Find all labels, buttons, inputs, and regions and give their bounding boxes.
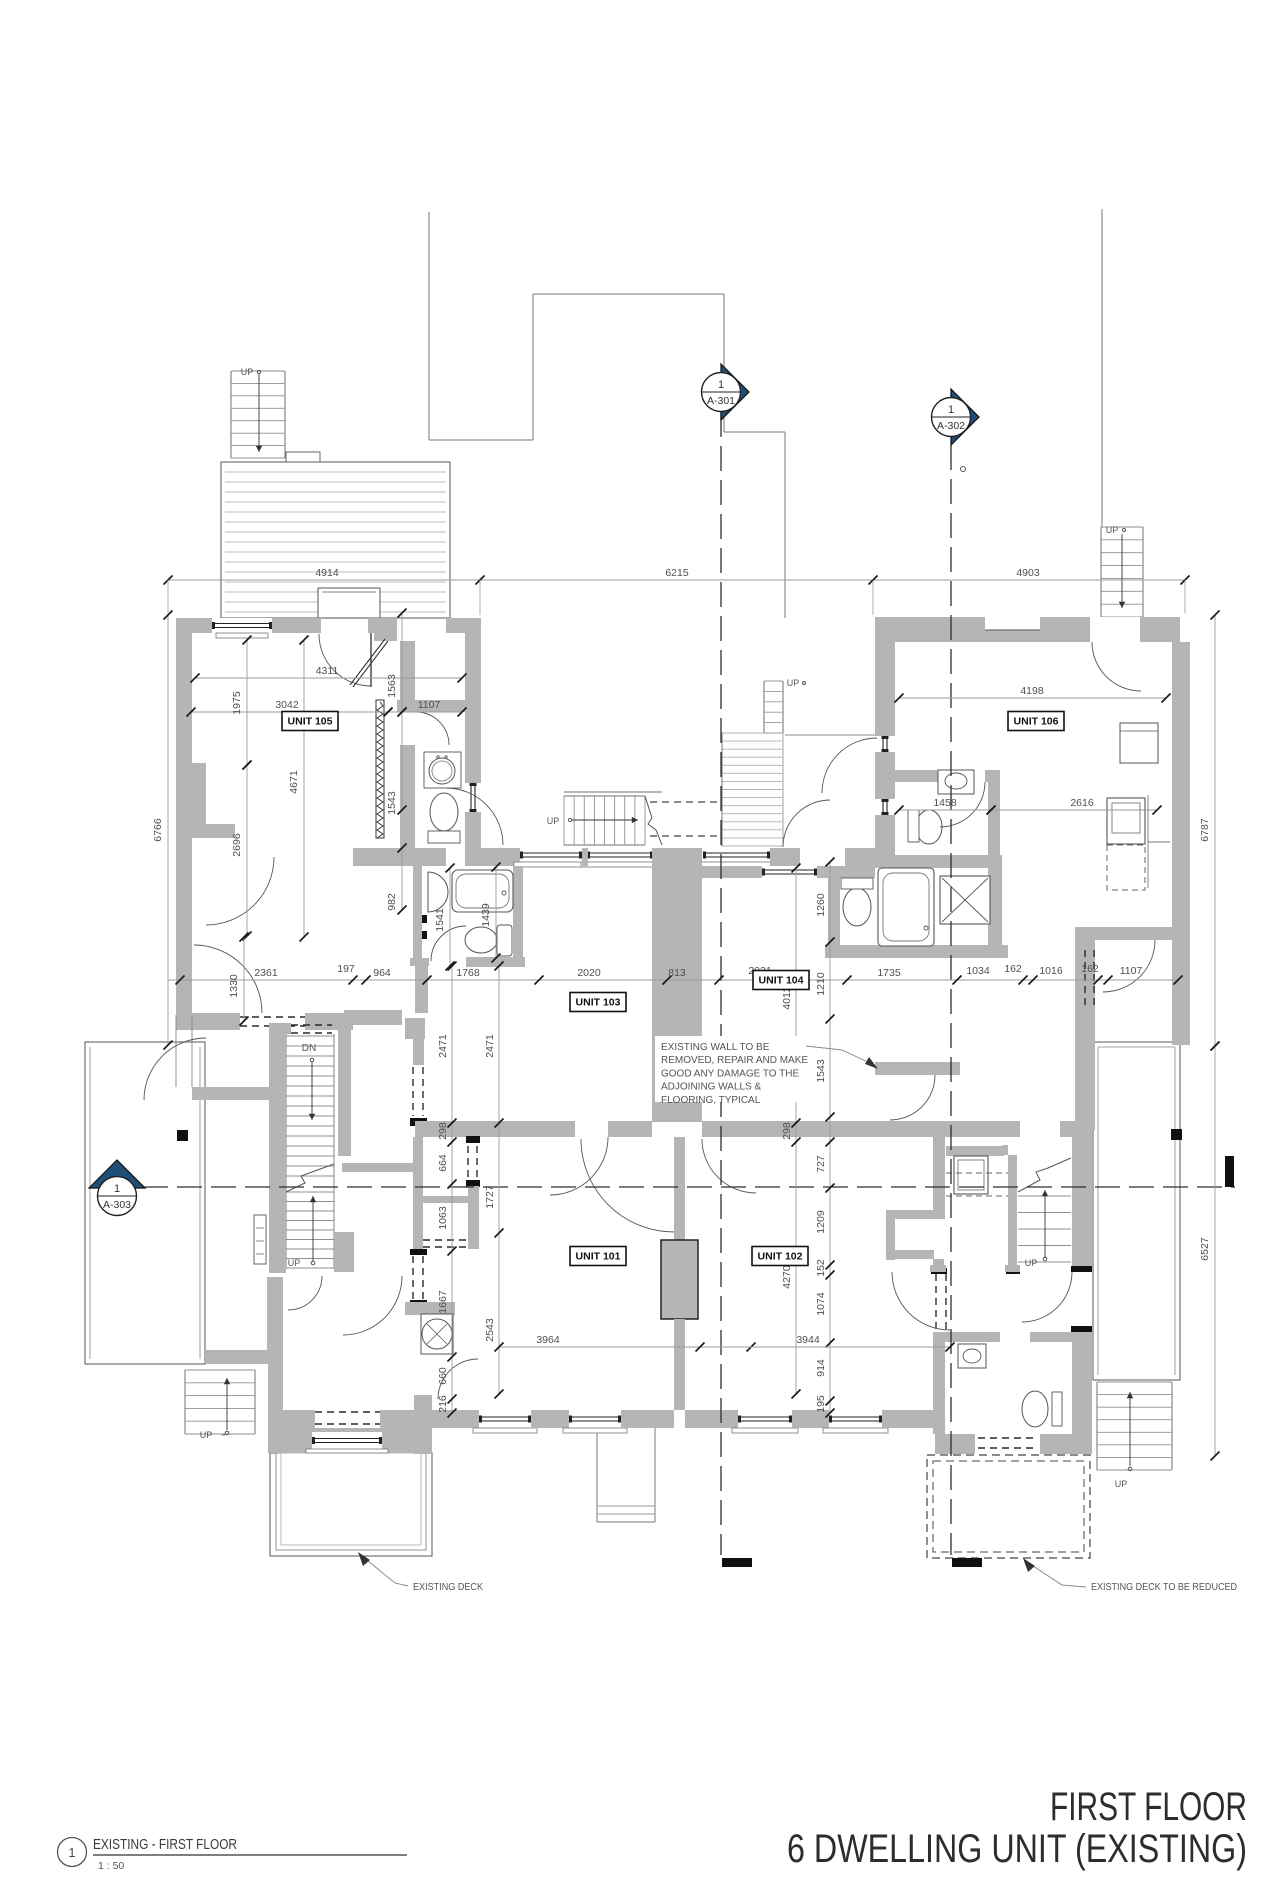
svg-text:6527: 6527 xyxy=(1199,1237,1211,1261)
svg-text:EXISTING - FIRST FLOOR: EXISTING - FIRST FLOOR xyxy=(93,1837,237,1853)
svg-text:1034: 1034 xyxy=(966,965,990,977)
svg-text:1: 1 xyxy=(114,1183,120,1195)
svg-text:6 DWELLING UNIT (EXISTING): 6 DWELLING UNIT (EXISTING) xyxy=(787,1827,1247,1871)
svg-text:3944: 3944 xyxy=(796,1334,820,1346)
svg-text:2696: 2696 xyxy=(231,833,243,857)
svg-text:6787: 6787 xyxy=(1199,818,1211,842)
svg-text:216: 216 xyxy=(437,1395,449,1413)
svg-text:1: 1 xyxy=(948,404,954,416)
svg-text:1107: 1107 xyxy=(1120,965,1143,977)
svg-text:EXISTING DECK TO BE REDUCED: EXISTING DECK TO BE REDUCED xyxy=(1091,1581,1237,1593)
svg-text:GOOD ANY DAMAGE TO THE: GOOD ANY DAMAGE TO THE xyxy=(661,1068,800,1079)
svg-text:UNIT 105: UNIT 105 xyxy=(288,716,333,728)
svg-text:1107: 1107 xyxy=(418,699,441,711)
svg-text:A-301: A-301 xyxy=(707,395,735,407)
svg-text:UP: UP xyxy=(1106,525,1119,535)
svg-text:1: 1 xyxy=(718,379,724,391)
svg-text:664: 664 xyxy=(437,1154,449,1172)
svg-text:UNIT 102: UNIT 102 xyxy=(758,1251,803,1263)
svg-text:162: 162 xyxy=(1004,963,1022,975)
svg-text:1439: 1439 xyxy=(480,903,492,927)
svg-text:A-302: A-302 xyxy=(937,420,965,432)
svg-text:UNIT 103: UNIT 103 xyxy=(576,997,621,1009)
svg-text:4270: 4270 xyxy=(781,1265,793,1289)
svg-text:UP: UP xyxy=(288,1258,301,1268)
svg-text:UP: UP xyxy=(1025,1258,1038,1268)
svg-text:152: 152 xyxy=(815,1259,827,1277)
svg-text:6215: 6215 xyxy=(665,567,689,579)
svg-text:UNIT 104: UNIT 104 xyxy=(759,975,804,987)
svg-text:1768: 1768 xyxy=(456,967,480,979)
svg-text:2471: 2471 xyxy=(484,1034,496,1058)
svg-text:298: 298 xyxy=(437,1122,449,1140)
svg-text:813: 813 xyxy=(668,967,686,979)
svg-text:FLOORING, TYPICAL: FLOORING, TYPICAL xyxy=(661,1095,761,1106)
svg-text:1543: 1543 xyxy=(815,1059,827,1083)
svg-text:UP: UP xyxy=(547,816,560,826)
svg-text:195: 195 xyxy=(815,1395,827,1413)
svg-text:A-303: A-303 xyxy=(103,1199,131,1211)
svg-text:162: 162 xyxy=(1081,963,1099,975)
svg-text:1063: 1063 xyxy=(437,1206,449,1230)
svg-text:1727: 1727 xyxy=(484,1185,496,1209)
svg-text:UP: UP xyxy=(787,678,800,688)
svg-text:2616: 2616 xyxy=(1070,797,1094,809)
svg-text:EXISTING DECK: EXISTING DECK xyxy=(413,1581,483,1593)
svg-text:4198: 4198 xyxy=(1020,685,1044,697)
svg-text:3964: 3964 xyxy=(536,1334,560,1346)
svg-text:1 : 50: 1 : 50 xyxy=(98,1860,124,1872)
svg-text:1074: 1074 xyxy=(815,1292,827,1316)
svg-text:2471: 2471 xyxy=(437,1034,449,1058)
svg-text:982: 982 xyxy=(386,893,398,911)
svg-text:1458: 1458 xyxy=(933,797,957,809)
svg-text:UP: UP xyxy=(200,1430,213,1440)
svg-text:4903: 4903 xyxy=(1016,567,1040,579)
svg-text:197: 197 xyxy=(337,963,355,975)
svg-text:1016: 1016 xyxy=(1039,965,1063,977)
svg-text:1543: 1543 xyxy=(386,791,398,815)
svg-text:1: 1 xyxy=(69,1846,76,1860)
svg-text:298: 298 xyxy=(781,1122,793,1140)
svg-text:1563: 1563 xyxy=(386,674,398,698)
svg-text:1260: 1260 xyxy=(815,893,827,917)
svg-text:2020: 2020 xyxy=(577,967,601,979)
svg-text:UP: UP xyxy=(1115,1479,1128,1489)
svg-text:1735: 1735 xyxy=(877,967,901,979)
svg-text:1209: 1209 xyxy=(815,1210,827,1234)
svg-text:1210: 1210 xyxy=(815,972,827,996)
svg-text:4914: 4914 xyxy=(315,567,339,579)
svg-text:1541: 1541 xyxy=(434,908,446,932)
svg-text:UNIT 101: UNIT 101 xyxy=(576,1251,621,1263)
svg-text:UNIT 106: UNIT 106 xyxy=(1014,716,1059,728)
svg-text:2543: 2543 xyxy=(484,1318,496,1342)
svg-text:UP: UP xyxy=(241,367,254,377)
svg-text:FIRST FLOOR: FIRST FLOOR xyxy=(1050,1785,1247,1829)
svg-text:ADJOINING WALLS &: ADJOINING WALLS & xyxy=(661,1082,762,1093)
svg-text:4671: 4671 xyxy=(288,770,300,794)
svg-text:964: 964 xyxy=(373,967,391,979)
svg-text:EXISTING WALL TO BE: EXISTING WALL TO BE xyxy=(661,1042,770,1053)
svg-text:DN: DN xyxy=(302,1043,316,1054)
svg-text:1667: 1667 xyxy=(437,1290,449,1314)
svg-text:660: 660 xyxy=(437,1367,449,1385)
svg-text:727: 727 xyxy=(815,1155,827,1173)
svg-text:3042: 3042 xyxy=(275,699,299,711)
svg-text:REMOVED, REPAIR AND MAKE: REMOVED, REPAIR AND MAKE xyxy=(661,1055,808,1066)
svg-text:6766: 6766 xyxy=(152,818,164,842)
svg-text:1330: 1330 xyxy=(228,974,240,998)
svg-text:1975: 1975 xyxy=(231,691,243,715)
svg-text:914: 914 xyxy=(815,1359,827,1377)
svg-text:4311: 4311 xyxy=(316,665,339,677)
svg-text:2361: 2361 xyxy=(254,967,278,979)
